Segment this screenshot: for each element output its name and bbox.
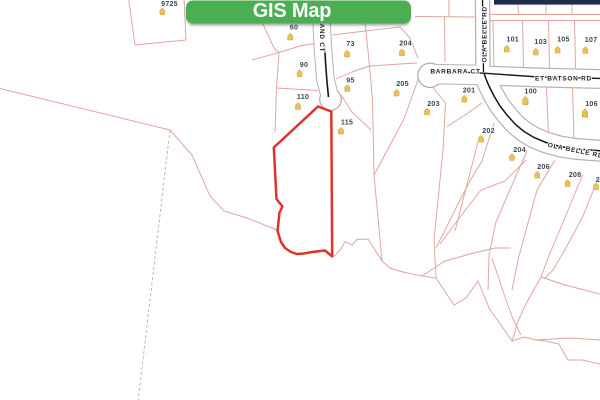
svg-text:ET BATSON RD: ET BATSON RD (535, 75, 592, 82)
svg-text:73: 73 (346, 39, 354, 48)
svg-text:100: 100 (524, 86, 537, 95)
svg-text:115: 115 (341, 118, 353, 127)
svg-text:203: 203 (427, 99, 440, 108)
svg-text:95: 95 (346, 76, 354, 85)
svg-text:103: 103 (534, 37, 547, 46)
svg-text:GIS Map: GIS Map (253, 0, 332, 22)
svg-text:205: 205 (396, 79, 409, 88)
svg-text:201: 201 (463, 86, 476, 95)
svg-text:BARBARA CT: BARBARA CT (430, 68, 480, 75)
svg-text:204: 204 (399, 39, 412, 48)
svg-text:107: 107 (585, 35, 598, 44)
svg-text:101: 101 (506, 34, 519, 43)
svg-text:210: 210 (596, 175, 600, 184)
svg-text:9725: 9725 (161, 0, 178, 8)
svg-text:204: 204 (513, 145, 526, 154)
svg-text:208: 208 (569, 170, 582, 179)
svg-text:110: 110 (297, 92, 309, 101)
svg-text:202: 202 (482, 126, 495, 135)
svg-text:90: 90 (300, 60, 308, 69)
svg-text:105: 105 (557, 34, 570, 43)
svg-text:206: 206 (537, 162, 550, 171)
svg-text:AND CT: AND CT (318, 24, 325, 53)
svg-text:106: 106 (585, 99, 598, 108)
svg-text:OLA BELLE RD: OLA BELLE RD (481, 6, 488, 62)
